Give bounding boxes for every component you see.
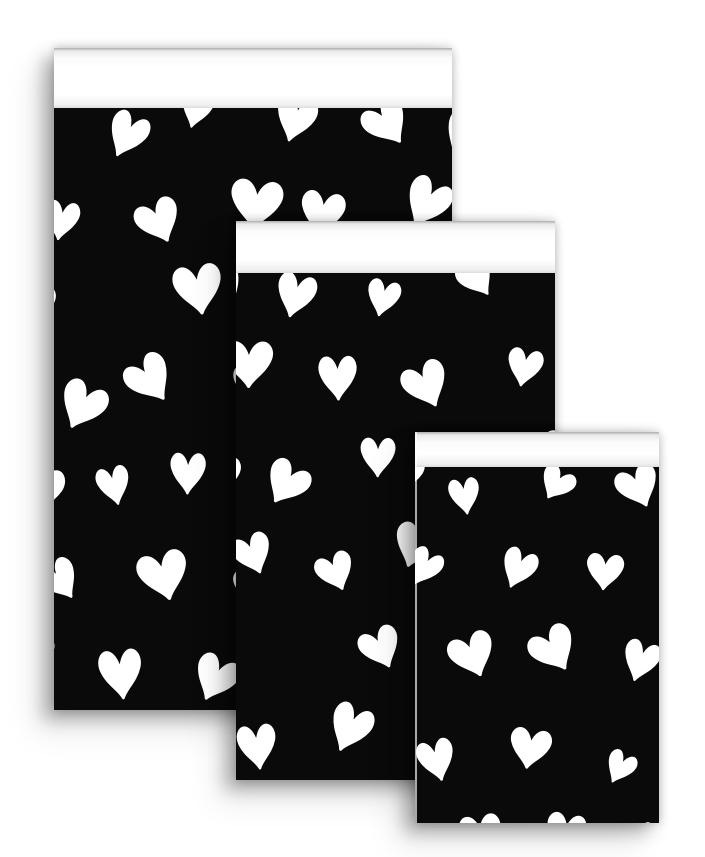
product-photo-stage [0,0,705,857]
gift-bag-small [415,432,659,823]
gift-bag-medium-flap [236,221,555,273]
gift-bag-large-flap [54,48,452,108]
gift-bag-small-body [415,467,659,823]
heart-pattern-icon [415,467,659,823]
gift-bag-small-flap [415,432,659,467]
heart-pattern-group [415,467,659,823]
